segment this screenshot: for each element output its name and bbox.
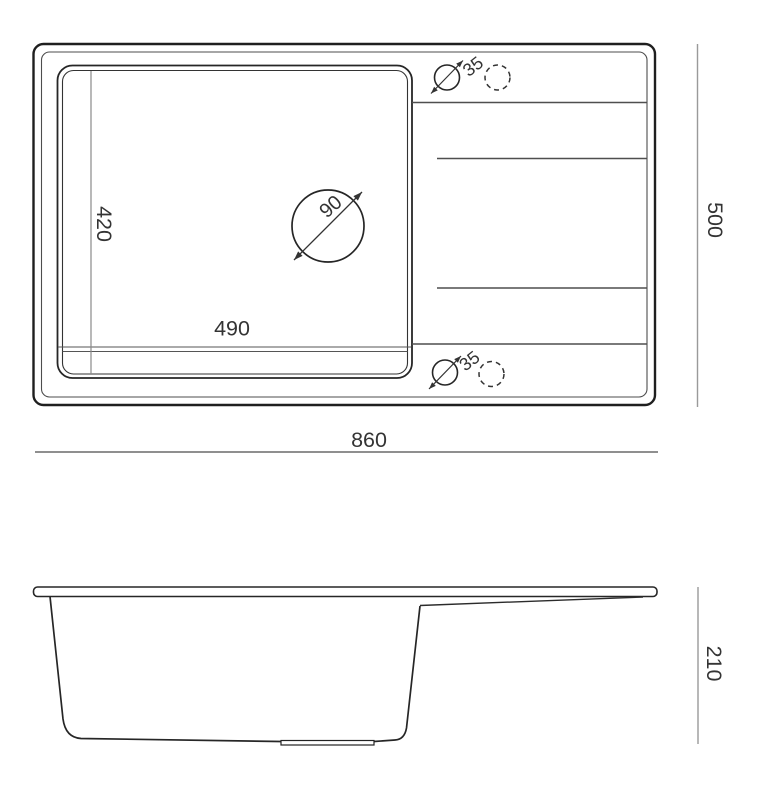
height-label: 210 <box>702 646 726 682</box>
sink-outer-edge <box>34 44 656 405</box>
side-drain-flange <box>281 741 374 746</box>
overall-width-label: 860 <box>351 428 387 452</box>
bowl-depth-label: 420 <box>92 206 116 242</box>
side-bowl-profile <box>50 597 420 742</box>
bowl-width-label: 490 <box>214 317 250 341</box>
drawing-canvas: 90 35 35 420 490 500 860 <box>0 0 762 800</box>
side-rim-bar <box>34 587 658 597</box>
overall-depth-label: 500 <box>703 202 727 238</box>
sink-technical-drawing: 90 35 35 420 490 500 860 <box>0 0 762 800</box>
side-drainer-underside-line <box>420 597 643 606</box>
side-view: 210 <box>34 587 727 745</box>
top-view: 90 35 35 420 490 500 860 <box>34 44 728 452</box>
